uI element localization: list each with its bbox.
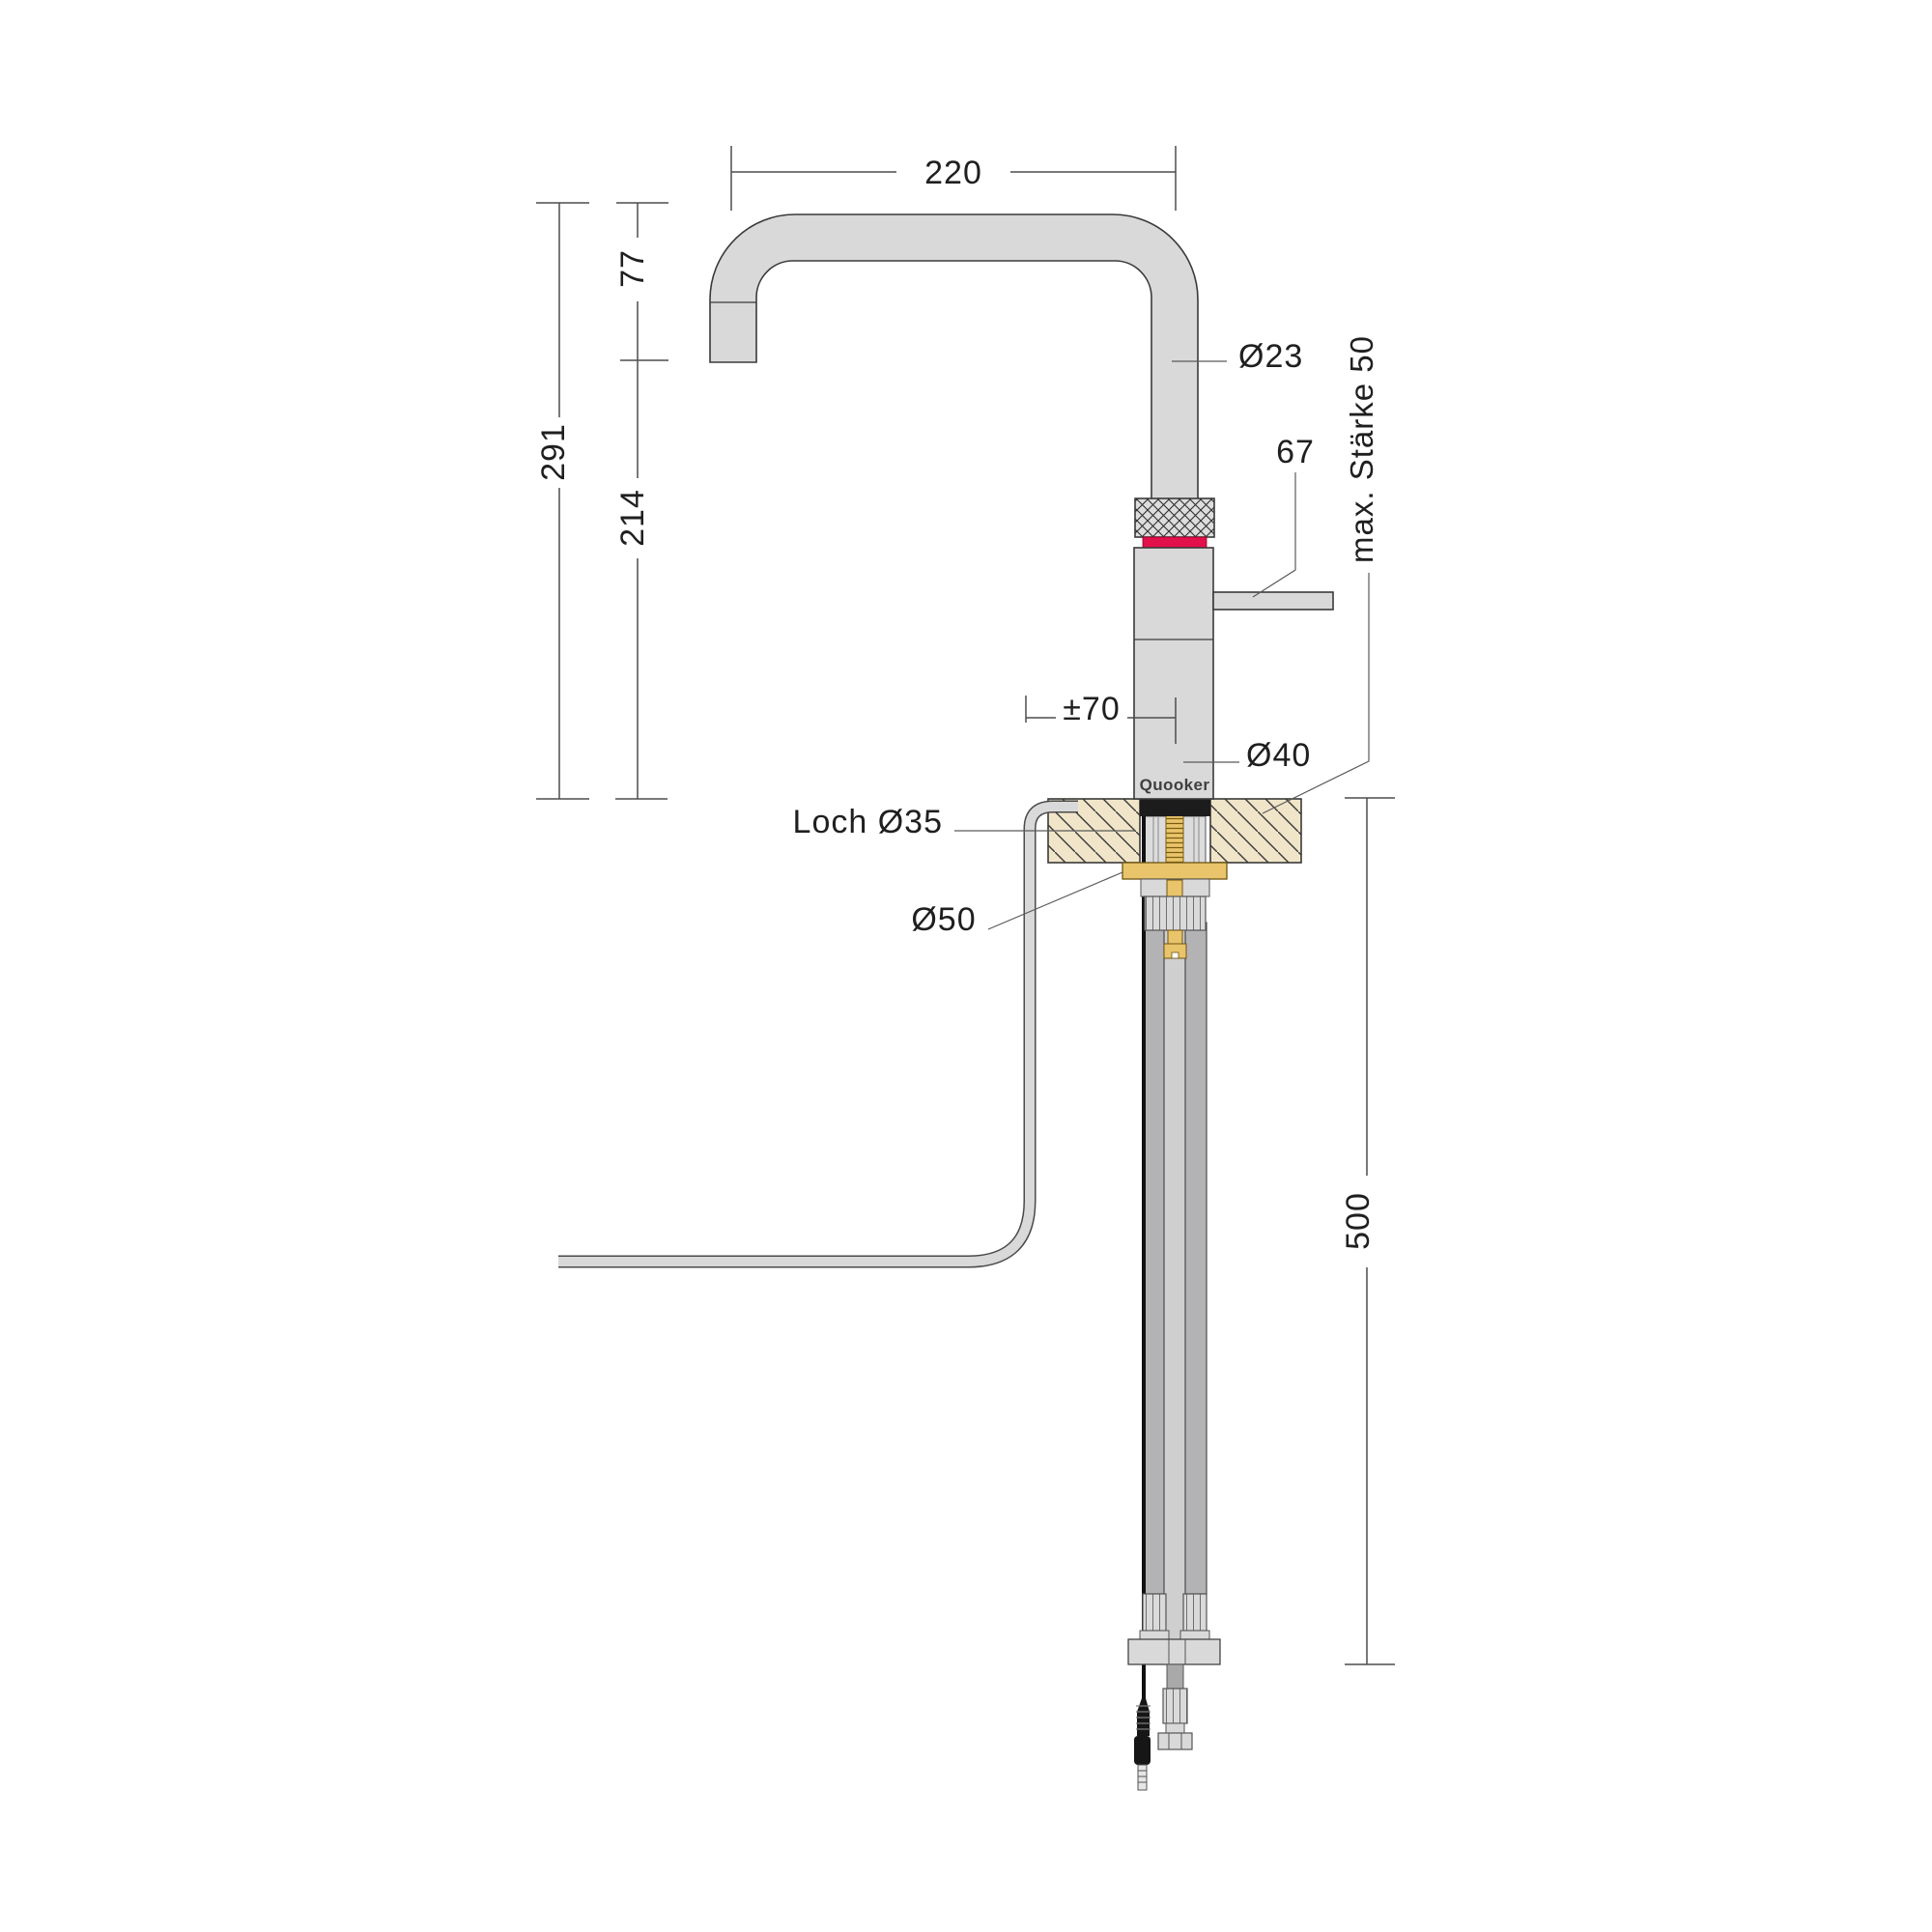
label-outlet-height: 214	[614, 489, 651, 547]
flexible-hose	[558, 807, 1078, 1262]
label-body-diameter: Ø40	[1246, 737, 1311, 774]
brass-washer	[1122, 863, 1227, 879]
brass-rod-lower	[1168, 930, 1182, 944]
label-washer-diameter: Ø50	[911, 901, 976, 938]
worktop-right-piece	[1210, 799, 1301, 863]
hex-nut	[1158, 1733, 1192, 1749]
cable-plug	[1134, 1736, 1151, 1765]
under-counter-assembly	[1122, 799, 1227, 1790]
label-max-worktop-thickness: max. Stärke 50	[1344, 335, 1379, 563]
right-connector-flange	[1180, 1631, 1209, 1639]
brass-block-notch	[1172, 952, 1179, 958]
dimension-handle: 67	[1253, 434, 1315, 597]
brass-nub	[1167, 880, 1182, 896]
spout	[710, 214, 1198, 499]
plug-tip	[1138, 1765, 1147, 1790]
label-spout-drop: 77	[614, 249, 651, 288]
bottom-collar	[1128, 1639, 1220, 1664]
dimension-spout-reach: 220	[731, 146, 1176, 211]
center-tube	[1164, 908, 1185, 1664]
label-height-total: 291	[535, 423, 572, 481]
tap: Quooker	[710, 214, 1333, 799]
fitting-neck	[1166, 1723, 1184, 1733]
tap-body	[1134, 548, 1213, 799]
brand-logo: Quooker	[1140, 776, 1210, 794]
bottom-tube	[1167, 1664, 1183, 1689]
red-ring	[1143, 537, 1207, 548]
knurled-ring	[1135, 498, 1214, 537]
left-supply-hose	[1143, 923, 1164, 1594]
label-spout-reach: 220	[924, 155, 982, 191]
right-supply-hose	[1185, 923, 1207, 1594]
left-connector-flange	[1140, 1631, 1169, 1639]
bottom-ribbed-fitting	[1163, 1689, 1187, 1723]
label-spout-diameter: Ø23	[1238, 338, 1303, 375]
dimension-below-counter: 500	[1340, 798, 1395, 1664]
flexible-hose-fill	[558, 807, 1078, 1262]
right-hose-connector	[1183, 1594, 1207, 1631]
left-hose-connector	[1143, 1594, 1166, 1631]
label-handle-length: 67	[1276, 434, 1315, 470]
flexible-hose-outline	[558, 807, 1078, 1262]
base-gasket	[1140, 799, 1210, 816]
handle-lever	[1213, 592, 1333, 610]
label-below-counter-length: 500	[1340, 1192, 1377, 1250]
mounting-nut	[1145, 896, 1206, 930]
dimension-left-heights: 291 77 214	[535, 203, 668, 799]
dimension-washer-diameter: Ø50	[911, 872, 1122, 938]
technical-drawing-quooker-tap: Quooker 220 291 77 214 Ø23 67 max	[0, 0, 1932, 1932]
label-swivel-offset: ±70	[1063, 691, 1120, 727]
label-hole-diameter: Loch Ø35	[793, 804, 943, 840]
